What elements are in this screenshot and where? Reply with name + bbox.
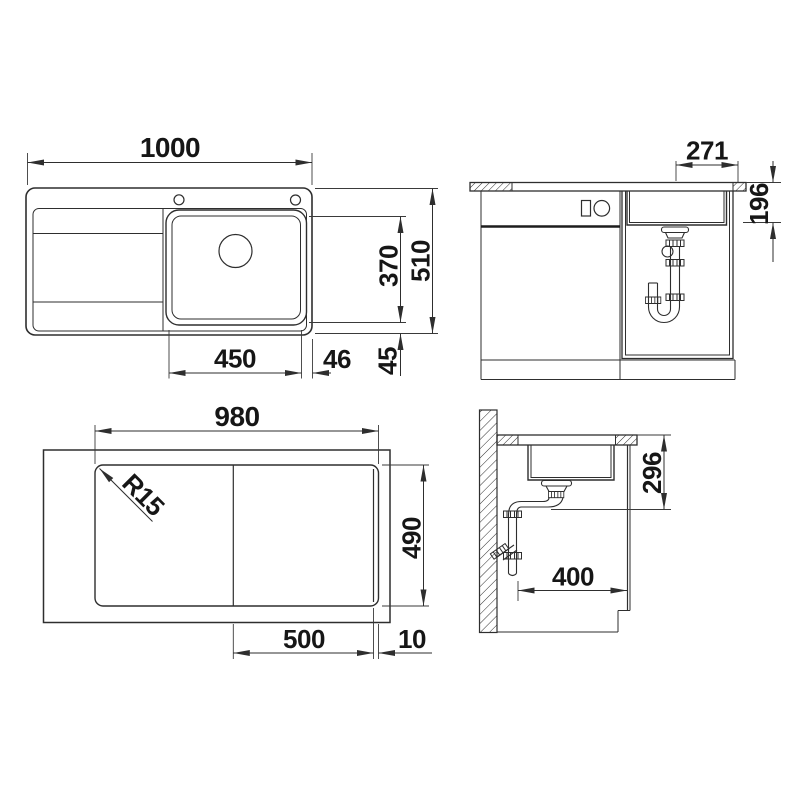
strainer-body	[666, 233, 685, 239]
sink-cabinet-outer	[622, 191, 733, 359]
bowl-side-inner	[531, 445, 611, 478]
dim-label-edge-strip: 10	[398, 624, 426, 654]
u-bend-inner	[658, 309, 671, 316]
dim-label-bowl-gap-right: 46	[323, 344, 351, 374]
dim-label-under-counter-depth: 196	[744, 183, 774, 225]
drain-trap-front	[646, 227, 689, 323]
dim-label-drain-offset: 271	[686, 136, 728, 166]
strainer-body-side	[546, 486, 567, 492]
strainer-flange-side	[542, 481, 572, 487]
overflow-loop	[662, 246, 673, 257]
outlet-pipe-upper	[522, 498, 550, 502]
dim-label-bowl-zone: 500	[283, 624, 325, 654]
countertop-side-hatch-right	[616, 435, 638, 445]
countertop-side-hatch-left	[497, 435, 518, 445]
side-section-view: 296 400	[480, 410, 672, 633]
drain-hole	[219, 235, 252, 268]
downpipe-right	[517, 507, 522, 574]
dim-label-overall-width: 1000	[140, 132, 200, 163]
dim-label-cutout-depth: 490	[397, 517, 427, 559]
trap-nut	[646, 297, 661, 304]
outlet-pipe-lower	[522, 498, 564, 508]
dim-label-side-depth: 296	[637, 452, 667, 494]
handle-symbol-rect	[582, 201, 591, 217]
sink-technical-drawing-page: 1000 510 370 450 46 45	[0, 0, 800, 800]
sink-technical-drawing: 1000 510 370 450 46 45	[0, 0, 800, 800]
dim-label-corner-radius: R15	[116, 468, 170, 522]
dim-label-cutout-width: 980	[214, 401, 259, 432]
trap-nut	[666, 240, 684, 247]
handle-symbol-circle	[594, 201, 610, 217]
bowl-side-outer	[528, 445, 614, 480]
bowl-front-inner	[630, 191, 725, 223]
strainer-flange	[662, 227, 689, 233]
wall-section	[480, 410, 498, 633]
dim-label-bowl-gap-front: 45	[373, 347, 403, 375]
trap-nut	[666, 260, 684, 267]
tap-hole-right	[291, 195, 301, 205]
dim-label-clearance: 400	[552, 562, 594, 592]
sink-rim	[33, 209, 307, 332]
downpipe-end	[509, 574, 517, 576]
bowl-front-outer	[627, 191, 727, 225]
sink-cabinet-inner	[626, 191, 730, 355]
u-bend-outer	[649, 307, 680, 323]
trap-nut	[666, 294, 684, 301]
cutout-plan-view: R15 980 490 500 10	[44, 401, 433, 659]
dim-label-overall-depth: 510	[406, 240, 436, 282]
trap-nut	[504, 511, 522, 518]
dim-label-bowl-depth: 370	[374, 245, 404, 287]
front-section-view: 271 196	[470, 136, 781, 380]
trap-nut	[549, 492, 564, 498]
plan-view: 1000 510 370 450 46 45	[26, 132, 438, 379]
dim-label-bowl-width: 450	[214, 344, 256, 374]
countertop-hatch-left	[470, 183, 512, 192]
tap-hole-left	[174, 195, 184, 205]
